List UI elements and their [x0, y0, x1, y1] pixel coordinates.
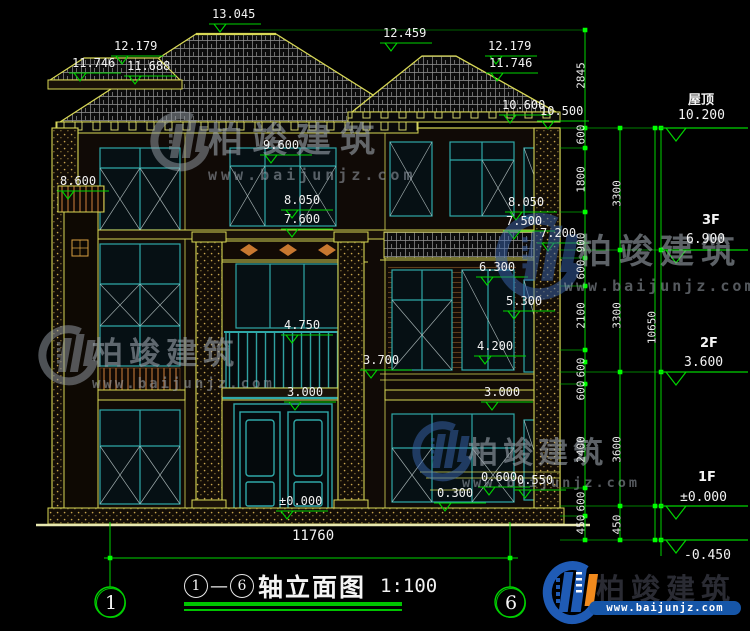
dim-tier2: 3300 — [612, 281, 623, 351]
title-dash: — — [210, 576, 228, 597]
elevation-mark: 10.600 — [502, 99, 545, 111]
elevation-mark: 8.600 — [60, 175, 96, 187]
bottom-total-dim: 11760 — [292, 530, 334, 542]
elevation-mark: 12.179 — [114, 40, 157, 52]
elevation-mark: 0.550 — [517, 474, 553, 486]
dim-tier2: 450 — [612, 490, 623, 560]
elevation-mark: 7.500 — [506, 215, 542, 227]
elevation-mark: 7.200 — [540, 227, 576, 239]
elevation-mark: 8.050 — [284, 194, 320, 206]
elevation-mark: 11.746 — [72, 57, 115, 69]
elevation-mark: ±0.000 — [279, 495, 322, 507]
elevation-mark: 5.300 — [506, 295, 542, 307]
cad-canvas: 13.045 12.459 12.179 11.746 11.688 12.17… — [0, 0, 750, 631]
dim-tier3: 10650 — [647, 293, 658, 363]
footer-brand-url: www.baijunjz.com — [589, 601, 741, 615]
level-value-2f: 3.600 — [684, 355, 723, 370]
elevation-mark: 7.600 — [284, 213, 320, 225]
dim-tier1: 450 — [576, 490, 587, 560]
elevation-mark: 13.045 — [212, 8, 255, 20]
level-value-roof: 10.200 — [678, 108, 725, 123]
elevation-mark: 12.459 — [383, 27, 426, 39]
axis-bubble-1: 1 — [96, 588, 126, 618]
elevation-mark: 0.600 — [481, 471, 517, 483]
elevation-mark: 6.300 — [479, 261, 515, 273]
level-value-3f: 6.900 — [686, 232, 725, 247]
drawing-title: 1 — 6 轴立面图 1:100 — [184, 568, 437, 604]
level-label-roof: 屋顶 — [688, 89, 714, 108]
elevation-mark: 3.000 — [287, 386, 323, 398]
footer-logo-layer — [0, 0, 750, 631]
elevation-mark: 0.300 — [437, 487, 473, 499]
title-underline-thin — [184, 609, 402, 611]
dim-tier2: 3300 — [612, 159, 623, 229]
title-axis-start: 1 — [184, 574, 208, 598]
level-value-1f: ±0.000 — [680, 490, 727, 505]
level-label-1f: 1F — [698, 470, 716, 485]
elevation-mark: 11.688 — [127, 60, 170, 72]
title-scale: 1:100 — [380, 575, 437, 597]
level-label-3f: 3F — [702, 213, 720, 228]
elevation-mark: 4.750 — [284, 319, 320, 331]
title-axis-end: 6 — [230, 574, 254, 598]
elevation-mark: 3.700 — [363, 354, 399, 366]
title-name: 轴立面图 — [258, 568, 366, 604]
elevation-mark: 9.600 — [263, 139, 299, 151]
elevation-mark: 3.000 — [484, 386, 520, 398]
elevation-mark: 12.179 — [488, 40, 531, 52]
title-underline — [184, 602, 402, 606]
axis-bubble-6: 6 — [496, 588, 526, 618]
dim-tier1: 1800 — [576, 145, 587, 215]
level-label-2f: 2F — [700, 336, 718, 351]
elevation-mark: 4.200 — [477, 340, 513, 352]
dim-tier2: 3600 — [612, 415, 623, 485]
elevation-mark: 11.746 — [489, 57, 532, 69]
level-value-ground: -0.450 — [684, 548, 731, 563]
elevation-mark: 8.050 — [508, 196, 544, 208]
